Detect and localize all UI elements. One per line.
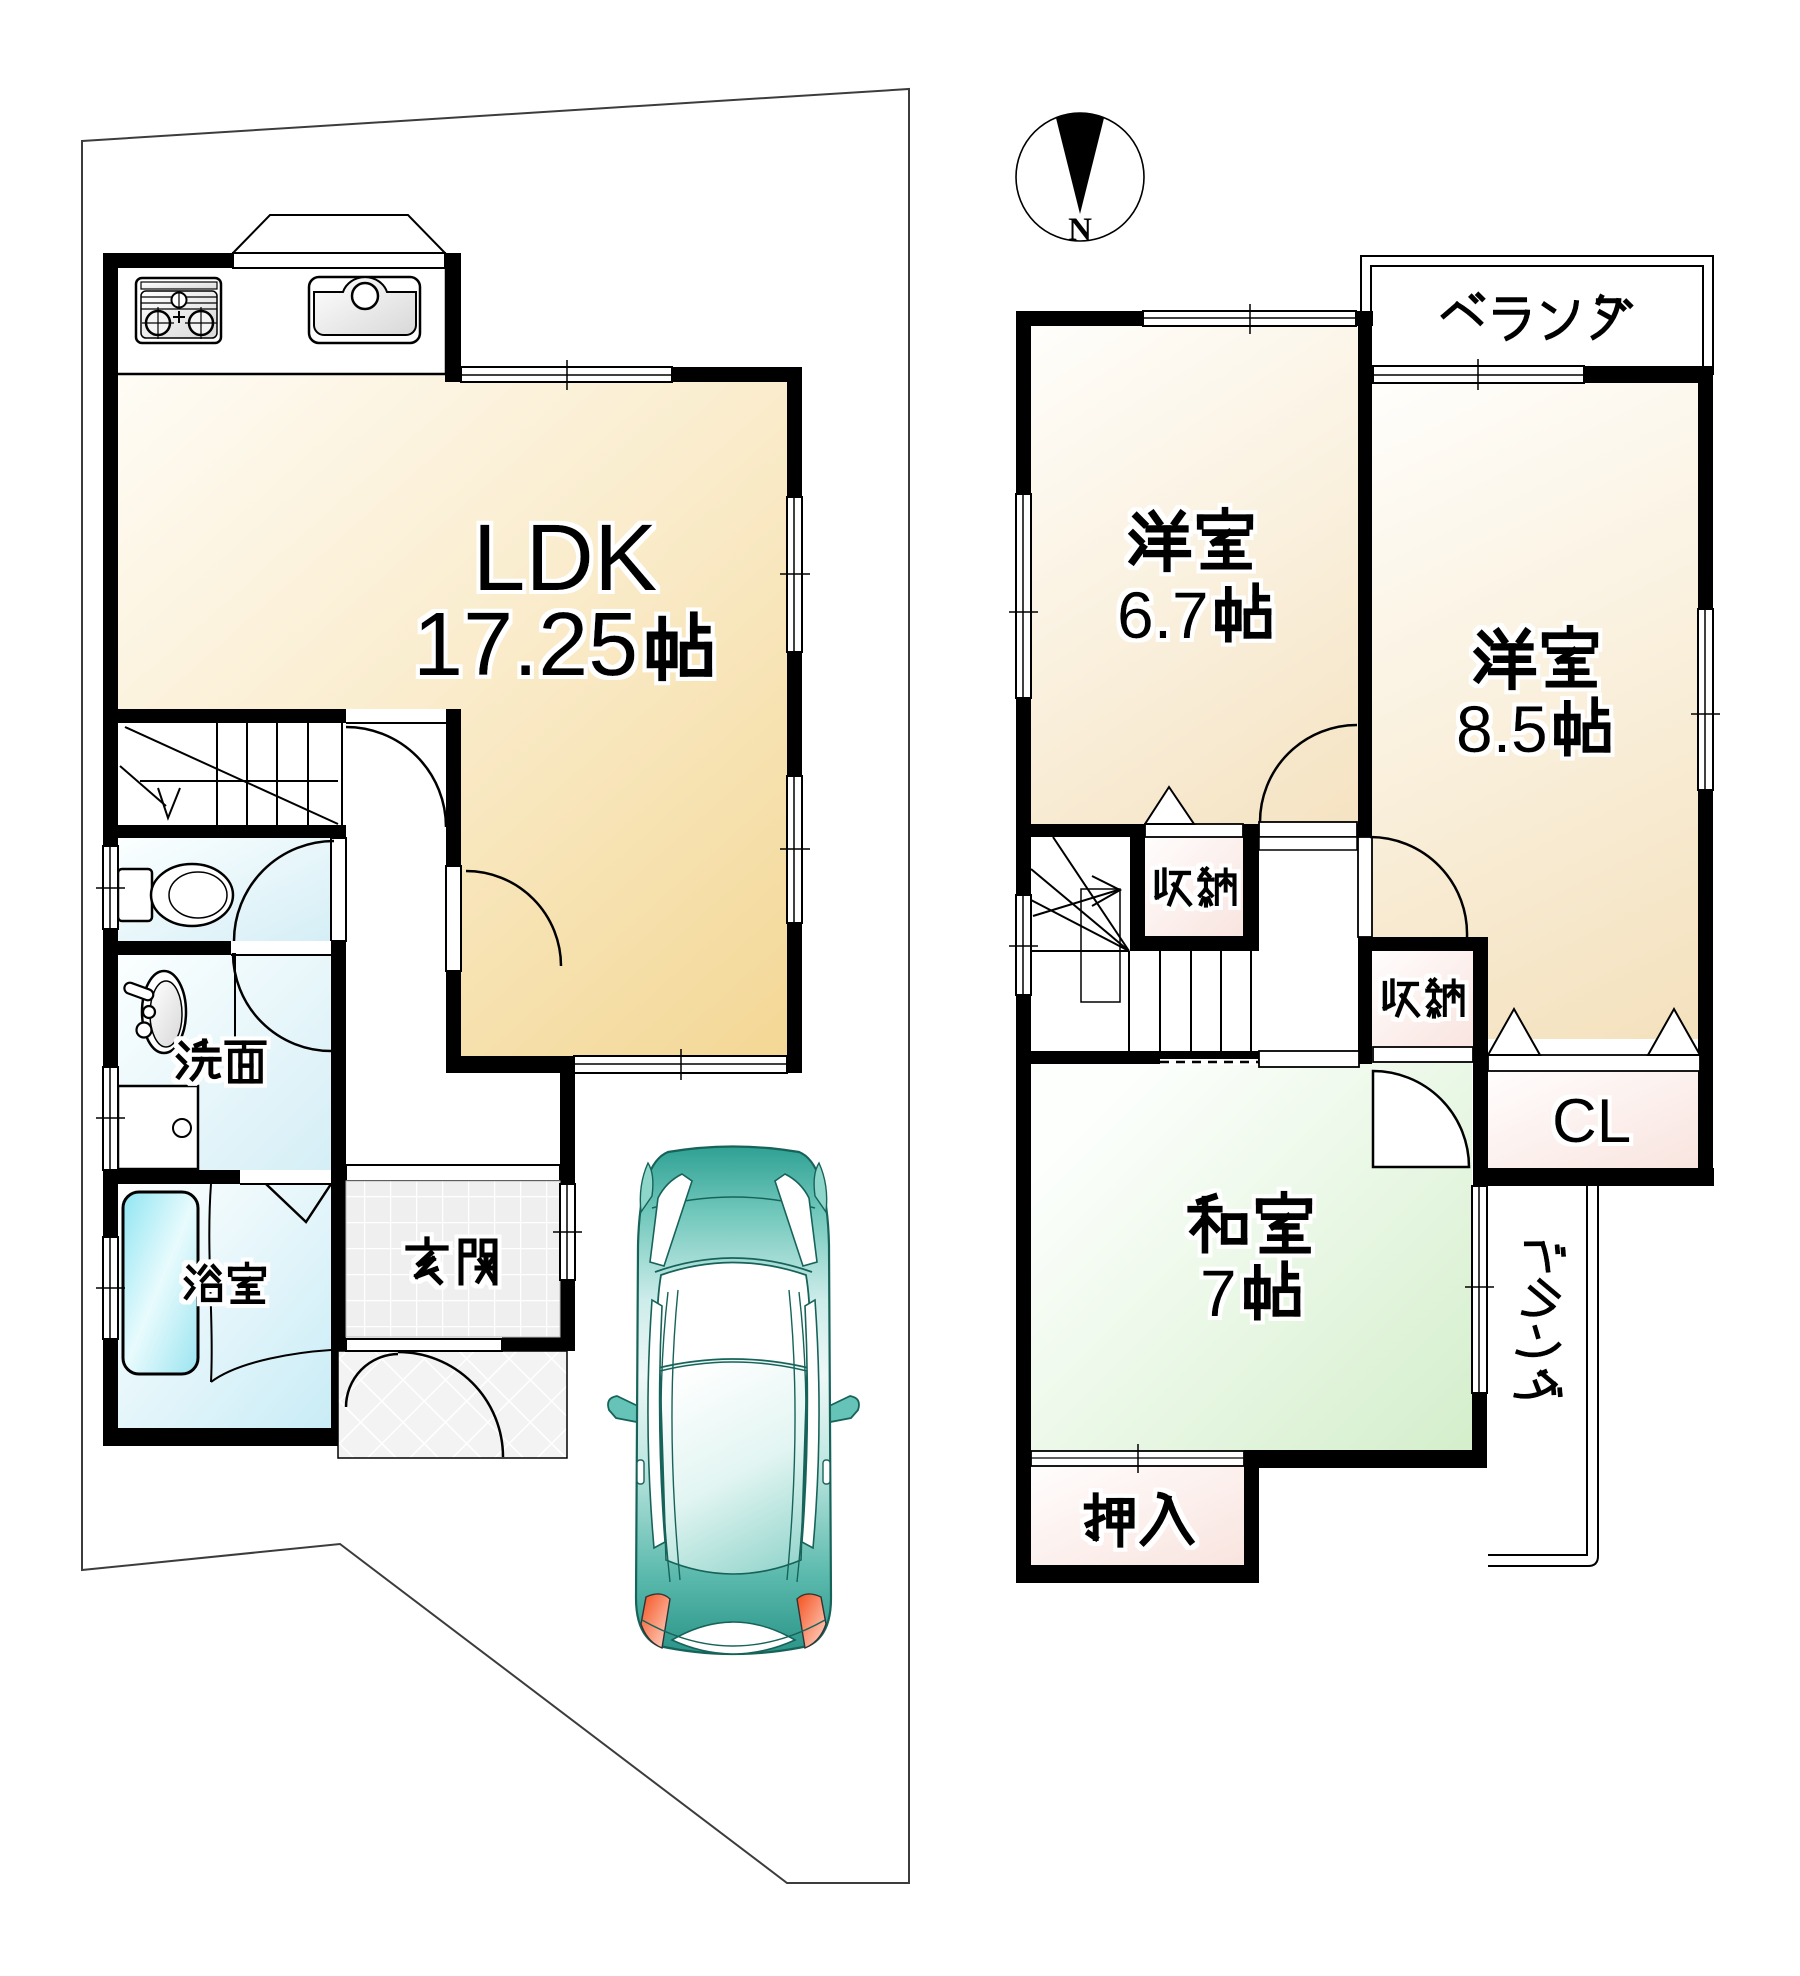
svg-text:6.7: 6.7 <box>1117 578 1209 652</box>
svg-text:7: 7 <box>1200 1256 1237 1330</box>
svg-text:CL: CL <box>1552 1087 1631 1156</box>
svg-text:8.5: 8.5 <box>1456 692 1548 766</box>
svg-text:17.25: 17.25 <box>413 595 638 695</box>
svg-text:N: N <box>1068 212 1092 248</box>
